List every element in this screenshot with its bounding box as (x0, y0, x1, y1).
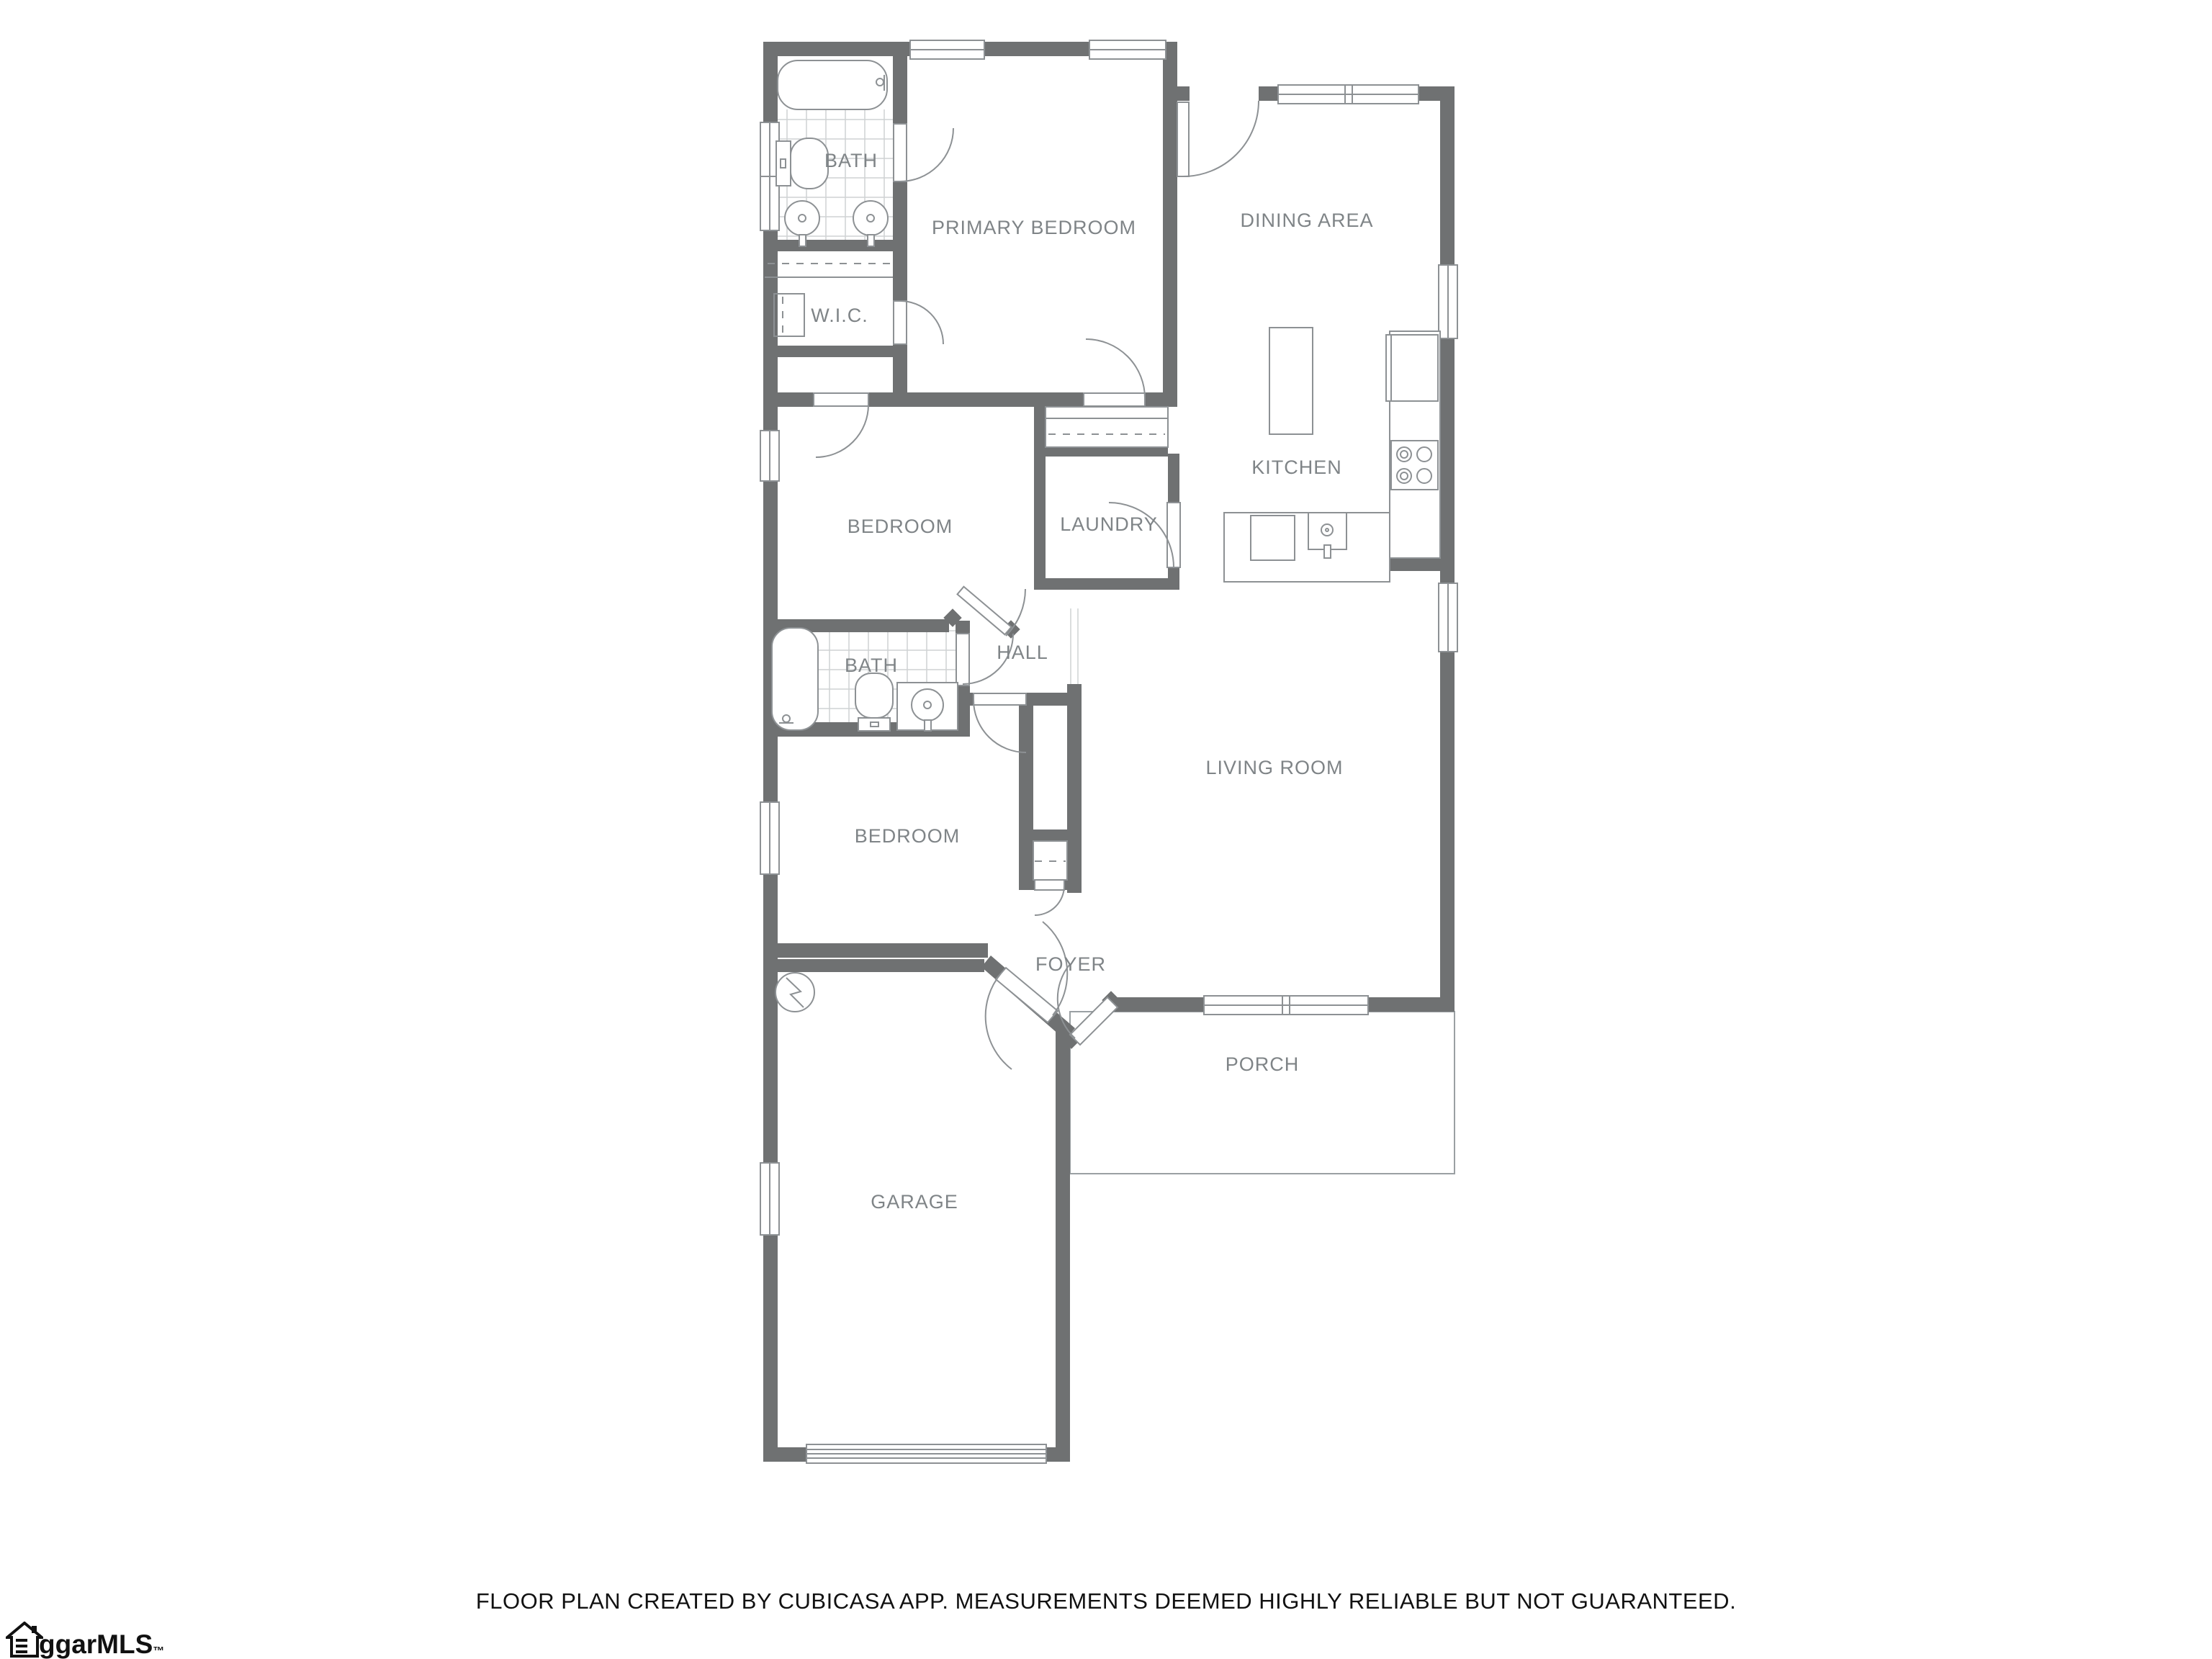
room-label-porch: PORCH (1226, 1053, 1300, 1075)
mls-logo: ggarMLS™ (6, 1622, 164, 1658)
room-label-hall: HALL (997, 642, 1048, 663)
primary-entry-door (1084, 339, 1145, 406)
garage-door-to-foyer (986, 922, 1068, 1069)
room-label-bedroom3: BEDROOM (855, 825, 961, 847)
wic-door (894, 301, 943, 344)
room-label-bath2: BATH (845, 655, 898, 676)
primary-window-1 (910, 40, 984, 59)
stove (1391, 441, 1438, 490)
kitchen-island (1269, 328, 1313, 434)
wic-shelf (765, 264, 893, 277)
bedroom3-window (760, 802, 779, 874)
foyer-closet (1033, 841, 1067, 880)
floor-plan-svg: BATH PRIMARY BEDROOM DINING AREA W.I.C. … (0, 0, 2212, 1659)
bedroom2-window (760, 431, 779, 481)
bedroom3-door (974, 693, 1026, 752)
room-label-wic: W.I.C. (811, 305, 868, 326)
wic-dresser (774, 294, 804, 336)
garage-vehicle-door (806, 1444, 1046, 1463)
sink-1a (785, 201, 819, 246)
room-label-laundry: LAUNDRY (1060, 513, 1158, 535)
toilet-1 (776, 138, 828, 189)
dining-right-window (1439, 265, 1457, 338)
living-bottom-window (1204, 996, 1368, 1015)
hall-closet-door (814, 393, 868, 457)
vanity-sink-2 (897, 683, 958, 731)
refrigerator (1386, 335, 1438, 401)
room-label-garage: GARAGE (871, 1191, 958, 1213)
toilet-2 (855, 673, 893, 731)
mls-logo-text: ggarMLS (39, 1631, 153, 1658)
room-label-dining-area: DINING AREA (1240, 210, 1373, 231)
bathtub-1 (778, 60, 887, 109)
room-label-bath1: BATH (824, 150, 878, 171)
laundry-closet (1046, 407, 1168, 447)
room-label-living-room: LIVING ROOM (1205, 757, 1343, 778)
porch-outline (1070, 1012, 1455, 1174)
laundry-door (1109, 503, 1180, 567)
sink-1b (853, 201, 888, 246)
primary-window-2 (1089, 40, 1166, 59)
foyer-closet-door (1035, 880, 1064, 915)
room-label-bedroom2: BEDROOM (848, 516, 953, 537)
walls (763, 42, 1455, 1462)
hall-living-break (1071, 608, 1078, 684)
living-right-window (1439, 583, 1457, 652)
bathtub-2 (772, 628, 818, 730)
dining-top-window (1278, 85, 1419, 104)
room-label-kitchen: KITCHEN (1251, 457, 1342, 478)
garage-window (760, 1163, 779, 1235)
footer-disclaimer: FLOOR PLAN CREATED BY CUBICASA APP. MEAS… (0, 1588, 2212, 1614)
floor-plan-page: BATH PRIMARY BEDROOM DINING AREA W.I.C. … (0, 0, 2212, 1659)
kitchen-counter-bottom (1224, 513, 1390, 582)
dishwasher (1251, 516, 1295, 560)
electrical-panel-icon (775, 973, 814, 1012)
bath1-door (894, 124, 953, 181)
house-icon (6, 1622, 43, 1658)
mls-logo-trademark: ™ (153, 1646, 164, 1658)
room-label-foyer: FOYER (1035, 953, 1106, 975)
room-label-primary-bedroom: PRIMARY BEDROOM (932, 217, 1136, 238)
